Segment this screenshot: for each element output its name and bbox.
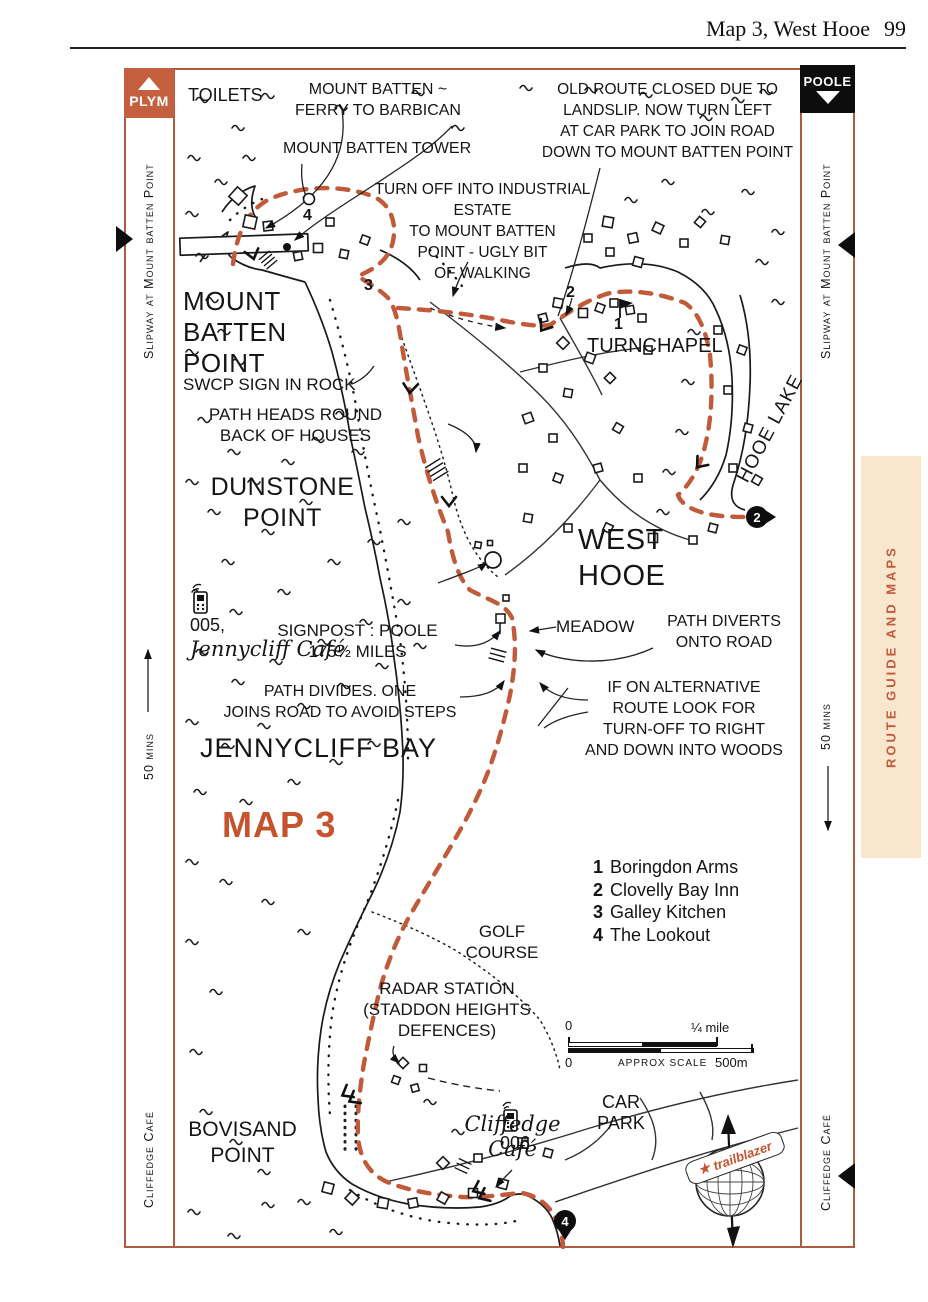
label-jennycliff-bay: JENNYCLIFF BAY [200, 738, 437, 759]
legend-item: 4The Lookout [593, 924, 739, 947]
label-hooe-lake: HOOE LAKE [733, 335, 827, 486]
label-ferry: MOUNT BATTEN ~ FERRY TO BARBICAN [283, 79, 473, 121]
legend-item: 3Galley Kitchen [593, 901, 739, 924]
map-label-layer: TOILETS MOUNT BATTEN ~ FERRY TO BARBICAN… [0, 0, 928, 1302]
label-path-divides: PATH DIVIDES. ONE JOINS ROAD TO AVOID ST… [220, 681, 460, 723]
label-toilets: TOILETS [188, 85, 263, 106]
legend-item: 2Clovelly Bay Inn [593, 879, 739, 902]
map-number-4: 4 [303, 207, 312, 225]
cafe-waypoint-number: 005, [190, 615, 225, 635]
scale-bar: 0 ¼ mile 0 APPROX SCALE 500m [563, 1018, 773, 1076]
label-path-diverts: PATH DIVERTS ONTO ROAD [650, 611, 798, 653]
label-turn-off: TURN OFF INTO INDUSTRIAL ESTATE TO MOUNT… [350, 179, 615, 284]
book-page: Map 3, West Hooe99 PLYM POOLE Slipway at… [0, 0, 928, 1302]
label-dunstone-point: DUNSTONE POINT [200, 472, 365, 534]
label-golf-course: GOLF COURSE [452, 921, 552, 963]
route-pin-2: 2 [746, 506, 768, 528]
scale-caption: APPROX SCALE [618, 1058, 707, 1069]
label-alternative-route: IF ON ALTERNATIVE ROUTE LOOK FOR TURN-OF… [570, 677, 798, 761]
label-mount-batten-point: MOUNT BATTEN POINT [183, 286, 287, 379]
label-meadow: MEADOW [556, 616, 634, 637]
scale-quarter-mile: ¼ mile [691, 1020, 729, 1035]
label-west-hooe: WEST HOOE [578, 522, 665, 594]
label-path-heads: PATH HEADS ROUND BACK OF HOUSES [178, 404, 413, 446]
pin-pointer-icon [558, 1229, 572, 1240]
map-number-1: 1 [614, 316, 623, 334]
legend-item: 1Boringdon Arms [593, 856, 739, 879]
scale-500m: 500m [715, 1055, 748, 1070]
map-title: MAP 3 [222, 814, 336, 835]
map-number-2: 2 [566, 284, 575, 302]
route-pin-4: 4 [554, 1210, 576, 1232]
label-car-park: CAR PARK [590, 1092, 652, 1134]
map-number-3: 3 [364, 277, 373, 295]
label-cliffedge-cafe: Cliffedge Café [455, 1112, 570, 1162]
map-legend: 1Boringdon Arms 2Clovelly Bay Inn 3Galle… [593, 856, 739, 946]
label-tower: MOUNT BATTEN TOWER [283, 138, 471, 159]
label-old-route: OLD ROUTE CLOSED DUE TO LANDSLIP. NOW TU… [535, 79, 800, 163]
trailblazer-banner: ★ trailblazer [683, 1129, 787, 1186]
phone-icon [190, 581, 210, 615]
label-radar-station: RADAR STATION (STADDON HEIGHTS DEFENCES) [358, 978, 536, 1041]
scale-zero-top: 0 [565, 1018, 572, 1033]
label-turnchapel: TURNCHAPEL [587, 336, 723, 357]
pin-pointer-icon [765, 510, 776, 524]
label-signpost: SIGNPOST : POOLE 175½ MILES [260, 620, 455, 662]
label-swcp: SWCP SIGN IN ROCK [183, 374, 356, 395]
label-bovisand-point: BOVISAND POINT [180, 1117, 305, 1169]
scale-zero-bottom: 0 [565, 1055, 572, 1070]
trailblazer-label: trailblazer [711, 1138, 774, 1173]
star-icon: ★ [696, 1160, 712, 1179]
